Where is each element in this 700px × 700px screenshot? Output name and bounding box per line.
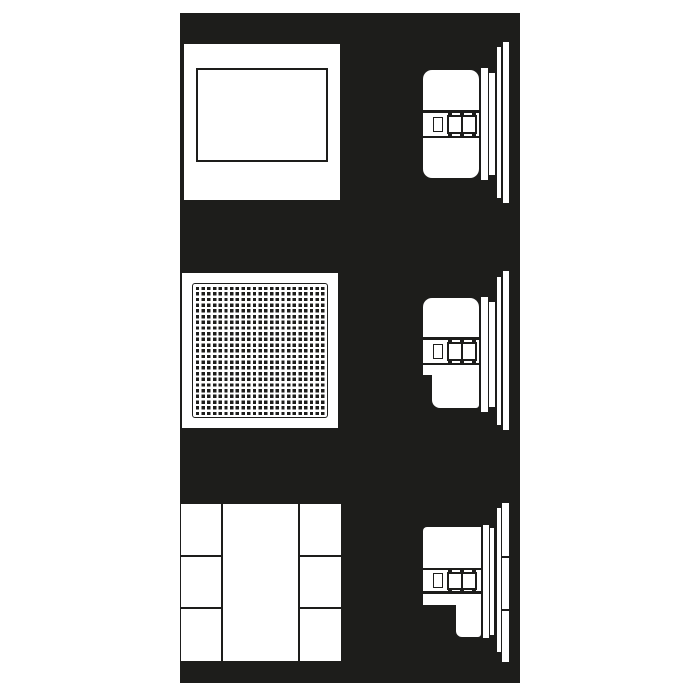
panel-seam-line: [502, 556, 509, 559]
clamp-tab: [472, 569, 477, 573]
product-installation-diagram: [0, 0, 700, 700]
panel-edge-inner: [497, 508, 501, 652]
clamp-tab: [472, 589, 477, 593]
row-3-segmented-panels-side-view: [0, 0, 700, 700]
panel-edge-outer: [502, 503, 509, 662]
clamp-tab: [460, 589, 465, 593]
device-body-lower: [456, 598, 481, 637]
panel-seam-line: [502, 609, 509, 612]
clamp-divider: [461, 572, 463, 590]
clamp-tab: [448, 569, 453, 573]
clamp-tab: [448, 589, 453, 593]
row-3-segmented-panels: [0, 0, 700, 700]
screw-detail: [433, 573, 443, 588]
clamp-tab: [460, 569, 465, 573]
trim-ring-edge: [490, 528, 494, 635]
mounting-flange: [483, 525, 489, 638]
